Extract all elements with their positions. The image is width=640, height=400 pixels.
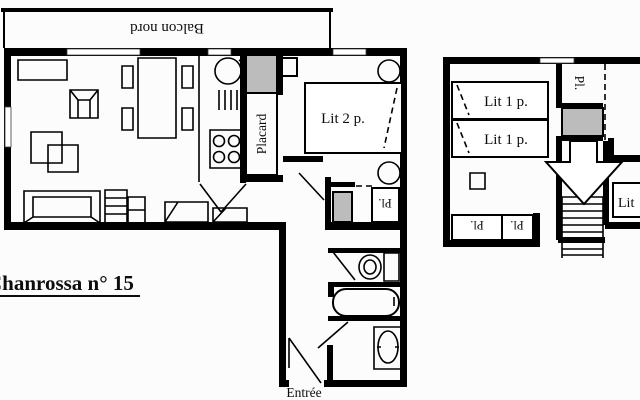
nightstand: [470, 173, 485, 189]
ground-floor-plan: Balcon nord: [0, 10, 407, 400]
floor-plan-image: Balcon nord: [0, 0, 640, 400]
bedside-table: [378, 162, 400, 184]
living-room: [18, 58, 247, 223]
burner: [214, 152, 225, 163]
sink: [215, 58, 241, 84]
utility-shaft: [246, 55, 277, 93]
wall-shelf: [281, 58, 297, 76]
shelf-unit: [105, 190, 127, 223]
hallway: Pl.: [333, 186, 399, 222]
nest-tables: [31, 132, 78, 172]
entrance-label: Entrée: [286, 385, 321, 400]
dining-chairs: [122, 66, 193, 130]
bedside-table: [378, 60, 400, 82]
toilet-bowl-inner: [364, 260, 376, 274]
bathroom-block: [333, 253, 402, 369]
floor-plan-canvas: Balcon nord: [0, 0, 640, 400]
upper-shaft: [562, 108, 603, 136]
low-cabinet: [213, 208, 247, 222]
window-upper-floor: [540, 58, 574, 63]
burner: [229, 136, 240, 147]
armchair: [70, 90, 98, 118]
single-bed-bottom-label: Lit 1 p.: [484, 132, 528, 148]
placard-label: Placard: [254, 114, 269, 155]
upper-bedroom: Lit 1 p. Lit 1 p.: [452, 82, 548, 189]
hall-shaft: [333, 192, 352, 222]
upper-floor-plan: Lit 1 p. Lit 1 p. Pl. Pl. Pl. Lit: [443, 57, 640, 258]
sink-drainer: [219, 90, 237, 110]
upper-closet-label: Pl.: [572, 76, 587, 91]
bedroom: Lit 2 p.: [281, 58, 402, 184]
single-bed-top-label: Lit 1 p.: [484, 94, 528, 110]
closet-left-label: Pl.: [470, 218, 484, 232]
upper-bottom-closets: Pl. Pl.: [452, 215, 533, 240]
sofa: [24, 191, 100, 223]
kitchen: [199, 56, 247, 182]
residence-title-group: Chanrossa n° 15: [0, 271, 140, 296]
burner: [229, 152, 240, 163]
balcony-label: Balcon nord: [130, 20, 204, 36]
toilet-tank: [384, 253, 399, 281]
bed-partial-label: Lit: [618, 196, 634, 211]
bathtub: [333, 289, 399, 316]
tv-cabinet: [165, 202, 208, 222]
cabinet-small: [128, 197, 145, 223]
stove: [210, 130, 243, 168]
stair-treads: [562, 197, 603, 258]
dining-table: [138, 58, 176, 138]
edge-bed: Lit: [613, 183, 640, 217]
hall-closet-label: Pl.: [378, 196, 392, 210]
closet-column: Placard: [246, 55, 277, 175]
balcony: Balcon nord: [1, 10, 333, 48]
closet-right-label: Pl.: [510, 218, 524, 232]
toilet-bowl: [359, 255, 381, 279]
sideboard: [18, 60, 67, 80]
residence-title: Chanrossa n° 15: [0, 271, 134, 295]
double-bed-label: Lit 2 p.: [321, 111, 365, 127]
burner: [214, 136, 225, 147]
